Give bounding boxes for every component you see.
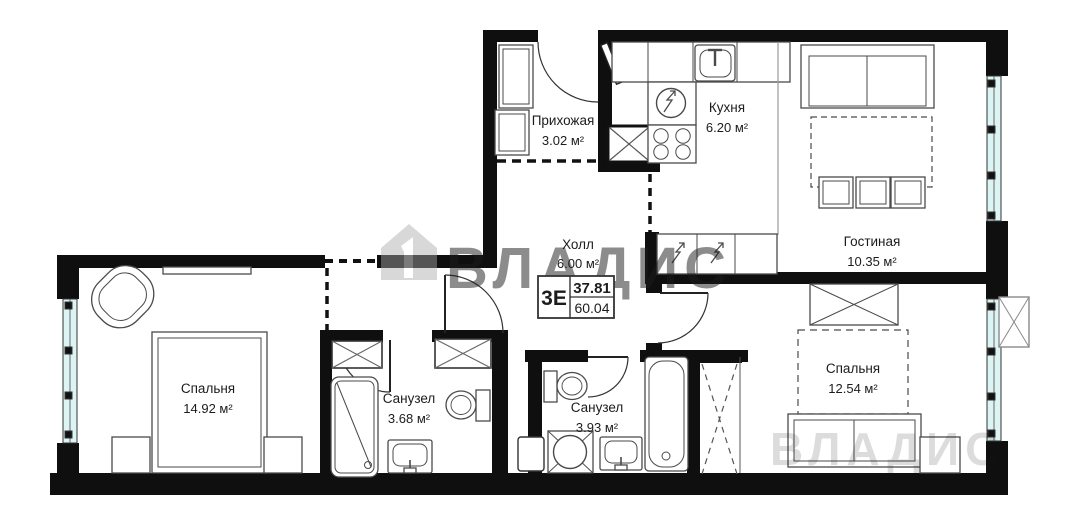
bathroom-2-fixtures bbox=[544, 357, 688, 473]
watermark-text-2: ВЛАДИС bbox=[770, 423, 1004, 475]
washing-machine bbox=[548, 431, 593, 473]
kitchen-sink bbox=[695, 45, 735, 81]
room-area-hall: 6.00 м² bbox=[557, 256, 600, 271]
nightstand bbox=[112, 437, 150, 473]
vent-box-hall-left bbox=[332, 341, 382, 368]
shelf bbox=[163, 267, 251, 274]
ac-unit bbox=[999, 297, 1029, 347]
room-area-bedroom-left: 14.92 м² bbox=[183, 401, 233, 416]
room-area-bathroom-1: 3.68 м² bbox=[388, 411, 431, 426]
bathtub bbox=[645, 357, 688, 471]
bathroom-2-door bbox=[588, 357, 628, 397]
room-label-bedroom-left: Спальня bbox=[181, 381, 235, 396]
room-label-hallway: Прихожая bbox=[532, 113, 595, 128]
window-bedroom-left bbox=[63, 299, 77, 443]
chairs bbox=[819, 177, 925, 208]
room-label-bathroom-1: Санузел bbox=[383, 391, 436, 406]
hallway-cabinets bbox=[495, 45, 533, 155]
wardrobe-niche bbox=[702, 357, 740, 474]
room-label-bedroom-right: Спальня bbox=[826, 361, 880, 376]
kitchen-appliance bbox=[648, 82, 696, 125]
room-area-living: 10.35 м² bbox=[847, 254, 897, 269]
sink bbox=[600, 437, 642, 470]
floor-plan: ВЛАДИС ВЛАДИС Прихожая 3.02 м² Кухня 6.2… bbox=[0, 0, 1078, 520]
window-living-room bbox=[987, 76, 1001, 221]
total-area-value: 60.04 bbox=[574, 300, 609, 316]
floor-plan-page: ВЛАДИС ВЛАДИС Прихожая 3.02 м² Кухня 6.2… bbox=[0, 0, 1078, 520]
shaft-fixture bbox=[518, 437, 544, 471]
unit-type: 3Е bbox=[541, 287, 567, 310]
sofa-living bbox=[801, 45, 934, 108]
toilet bbox=[446, 390, 490, 421]
area-summary-box: 3Е 37.81 60.04 bbox=[538, 276, 614, 318]
room-area-hallway: 3.02 м² bbox=[542, 133, 585, 148]
bedroom-left-furniture bbox=[82, 256, 302, 473]
room-area-bedroom-right: 12.54 м² bbox=[828, 381, 878, 396]
toilet bbox=[544, 371, 587, 402]
room-area-kitchen: 6.20 м² bbox=[706, 120, 749, 135]
living-room-furniture bbox=[801, 45, 934, 208]
room-label-kitchen: Кухня bbox=[709, 100, 745, 115]
vent-box-hall-right bbox=[435, 339, 491, 368]
sink bbox=[388, 440, 432, 473]
room-label-hall: Холл bbox=[562, 237, 594, 252]
room-label-bathroom-2: Санузел bbox=[571, 400, 624, 415]
stove bbox=[648, 125, 696, 163]
living-area-value: 37.81 bbox=[573, 280, 611, 297]
watermark-logo-icon bbox=[381, 224, 437, 280]
shower bbox=[331, 377, 378, 477]
nightstand bbox=[264, 437, 302, 473]
vent-shaft-kitchen bbox=[608, 126, 650, 162]
wardrobe-bedroom-right bbox=[810, 284, 898, 325]
room-label-living: Гостиная bbox=[844, 234, 901, 249]
room-area-bathroom-2: 3.93 м² bbox=[576, 420, 619, 435]
